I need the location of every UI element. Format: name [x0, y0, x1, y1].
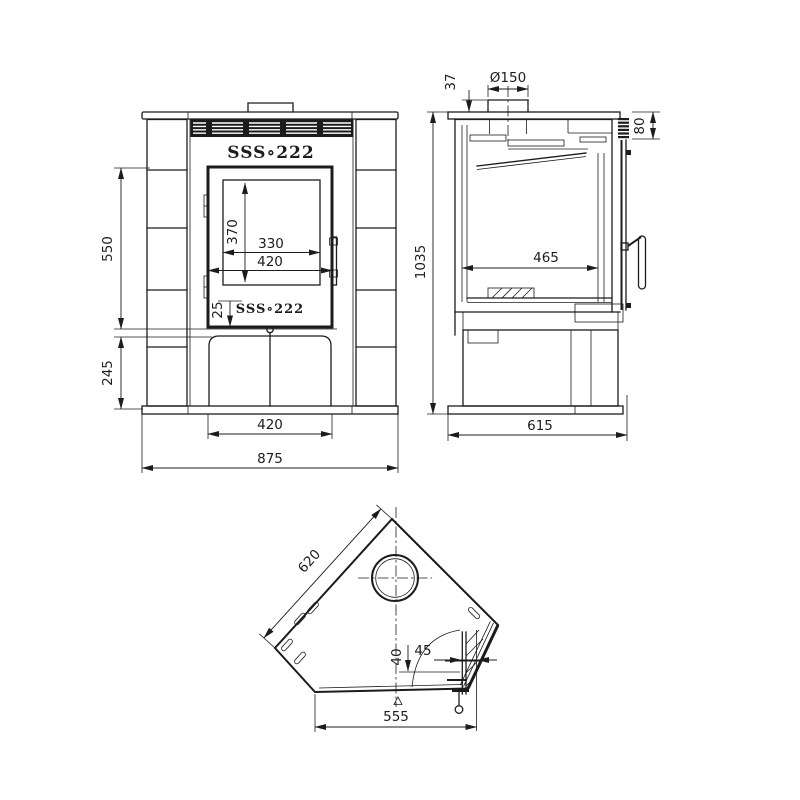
svg-text:555: 555 [383, 709, 409, 725]
side-door-handle-icon [621, 236, 646, 289]
svg-text:Ø150: Ø150 [490, 70, 526, 86]
side-base [448, 406, 623, 414]
dim-glass-height: 370 [225, 183, 245, 282]
front-base [142, 406, 398, 414]
side-view: Ø150 37 80 1035 465 615 [413, 70, 660, 441]
dim-front-width: 555 [315, 694, 477, 732]
dim-lower-height: 245 [100, 337, 212, 409]
side-front-grille [618, 118, 629, 138]
svg-text:37: 37 [443, 73, 459, 90]
svg-text:420: 420 [257, 417, 283, 433]
svg-text:40: 40 [389, 648, 405, 665]
front-left-column [147, 120, 187, 407]
svg-text:1035: 1035 [413, 245, 429, 279]
top-outline [275, 519, 498, 692]
svg-text:330: 330 [258, 236, 284, 252]
svg-text:45: 45 [414, 643, 431, 659]
svg-text:550: 550 [100, 236, 116, 262]
side-top-plate [448, 112, 620, 119]
top-vent-slots [281, 601, 481, 664]
front-flue-stub [248, 103, 293, 112]
svg-text:620: 620 [295, 546, 324, 576]
hearth-hatch [488, 288, 534, 298]
top-handle-icon [455, 692, 463, 713]
dim-grille-height: 80 [632, 112, 660, 139]
stove-technical-drawing: SSS∘222 SSS∘222 [0, 0, 800, 800]
svg-text:25: 25 [210, 301, 226, 318]
svg-text:420: 420 [257, 254, 283, 270]
side-flue-pipe [488, 86, 528, 142]
flame-logo-small: SSS∘222 [236, 302, 304, 317]
svg-text:875: 875 [257, 451, 283, 467]
dim-firebox-depth: 465 [462, 250, 598, 268]
front-lower-panels [209, 333, 331, 406]
dim-overall-height: 1035 [413, 112, 450, 414]
front-view: SSS∘222 SSS∘222 [100, 103, 398, 473]
side-door-front [622, 140, 632, 310]
dim-overall-depth: 615 [448, 395, 627, 441]
svg-text:615: 615 [527, 418, 553, 434]
dim-flue-stub-height: 37 [443, 73, 487, 111]
front-right-column [356, 120, 396, 407]
front-top-plate [142, 112, 398, 119]
svg-text:370: 370 [225, 219, 241, 245]
flame-logo: SSS∘222 [227, 143, 314, 163]
dim-door-width: 420 [208, 254, 332, 271]
latch-mark [394, 697, 402, 705]
front-grille [191, 120, 354, 138]
svg-text:80: 80 [632, 117, 648, 134]
top-flue-hole [358, 555, 432, 601]
svg-text:465: 465 [533, 250, 559, 266]
svg-text:245: 245 [100, 360, 116, 386]
top-view: 620 40 45 555 [259, 505, 498, 732]
dim-base-width: 420 [208, 414, 332, 439]
